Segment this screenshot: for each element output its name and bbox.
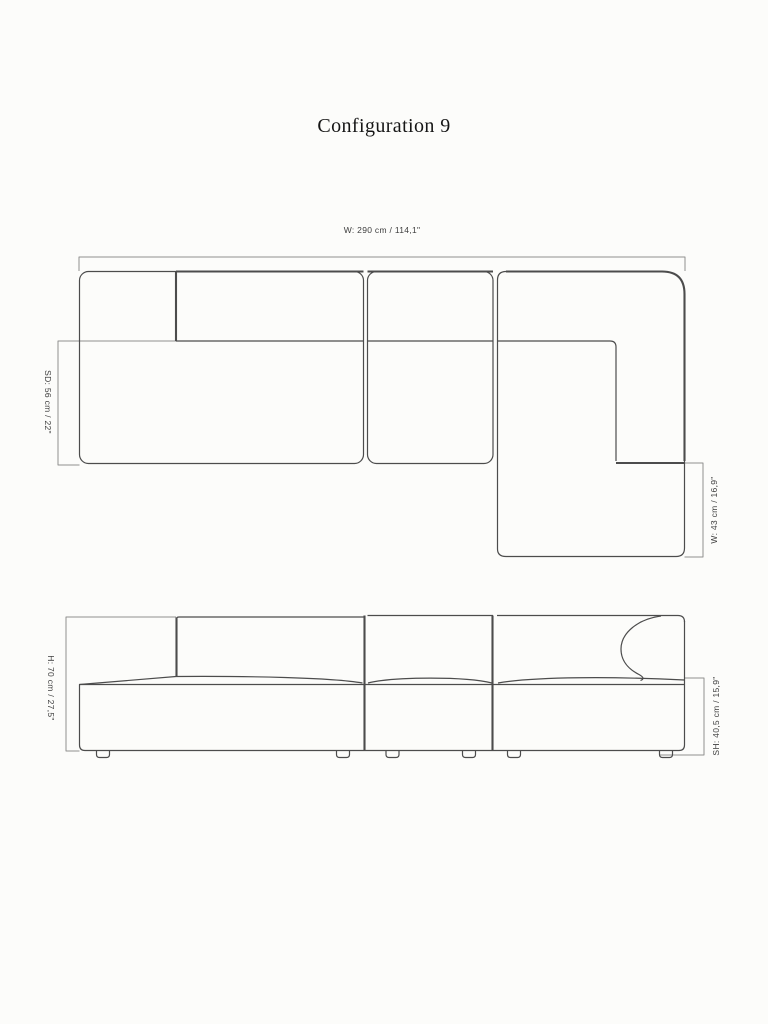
front-view: H: 70 cm / 27,5" SH: 40,5 cm / 15,9"	[46, 616, 721, 758]
dim-overall-width-line	[79, 257, 685, 271]
module-corner-top	[498, 272, 685, 557]
front-seat-cushions	[80, 676, 685, 684]
dim-chaise-width-line	[685, 463, 704, 557]
module-left-top	[80, 272, 364, 464]
dim-overall-width: W: 290 cm / 114,1"	[79, 225, 685, 271]
dim-seat-height: SH: 40,5 cm / 15,9"	[660, 676, 721, 755]
module-corner-outline	[498, 272, 685, 557]
front-corner-curve	[621, 616, 661, 681]
front-feet	[97, 751, 673, 758]
top-view: W: 290 cm / 114,1" SD: 56 cm / 22" W: 43…	[43, 225, 719, 557]
module-middle-outline	[368, 272, 494, 464]
module-middle-top	[368, 272, 494, 464]
dim-overall-width-label: W: 290 cm / 114,1"	[344, 225, 421, 235]
dim-seat-depth-line	[58, 341, 176, 465]
dim-seat-height-line	[660, 678, 704, 755]
module-corner-backrest-edge	[506, 272, 685, 462]
sofa-front-elevation	[80, 616, 685, 758]
module-left-outline	[80, 272, 364, 464]
front-module-separators	[365, 616, 493, 751]
dim-chaise-width: W: 43 cm / 16,9"	[685, 463, 720, 557]
dim-overall-height-label: H: 70 cm / 27,5"	[46, 655, 56, 720]
dim-seat-depth-label: SD: 56 cm / 22"	[43, 370, 53, 434]
dim-seat-height-label: SH: 40,5 cm / 15,9"	[711, 676, 721, 755]
front-base-outline	[80, 621, 685, 751]
module-left-backrest-edge	[176, 272, 364, 342]
dim-seat-depth: SD: 56 cm / 22"	[43, 341, 176, 465]
front-left-backrest-top	[177, 617, 364, 619]
module-corner-backrest-inner	[498, 341, 617, 461]
dim-chaise-width-label: W: 43 cm / 16,9"	[709, 476, 719, 543]
dimension-drawing: W: 290 cm / 114,1" SD: 56 cm / 22" W: 43…	[0, 0, 768, 1024]
